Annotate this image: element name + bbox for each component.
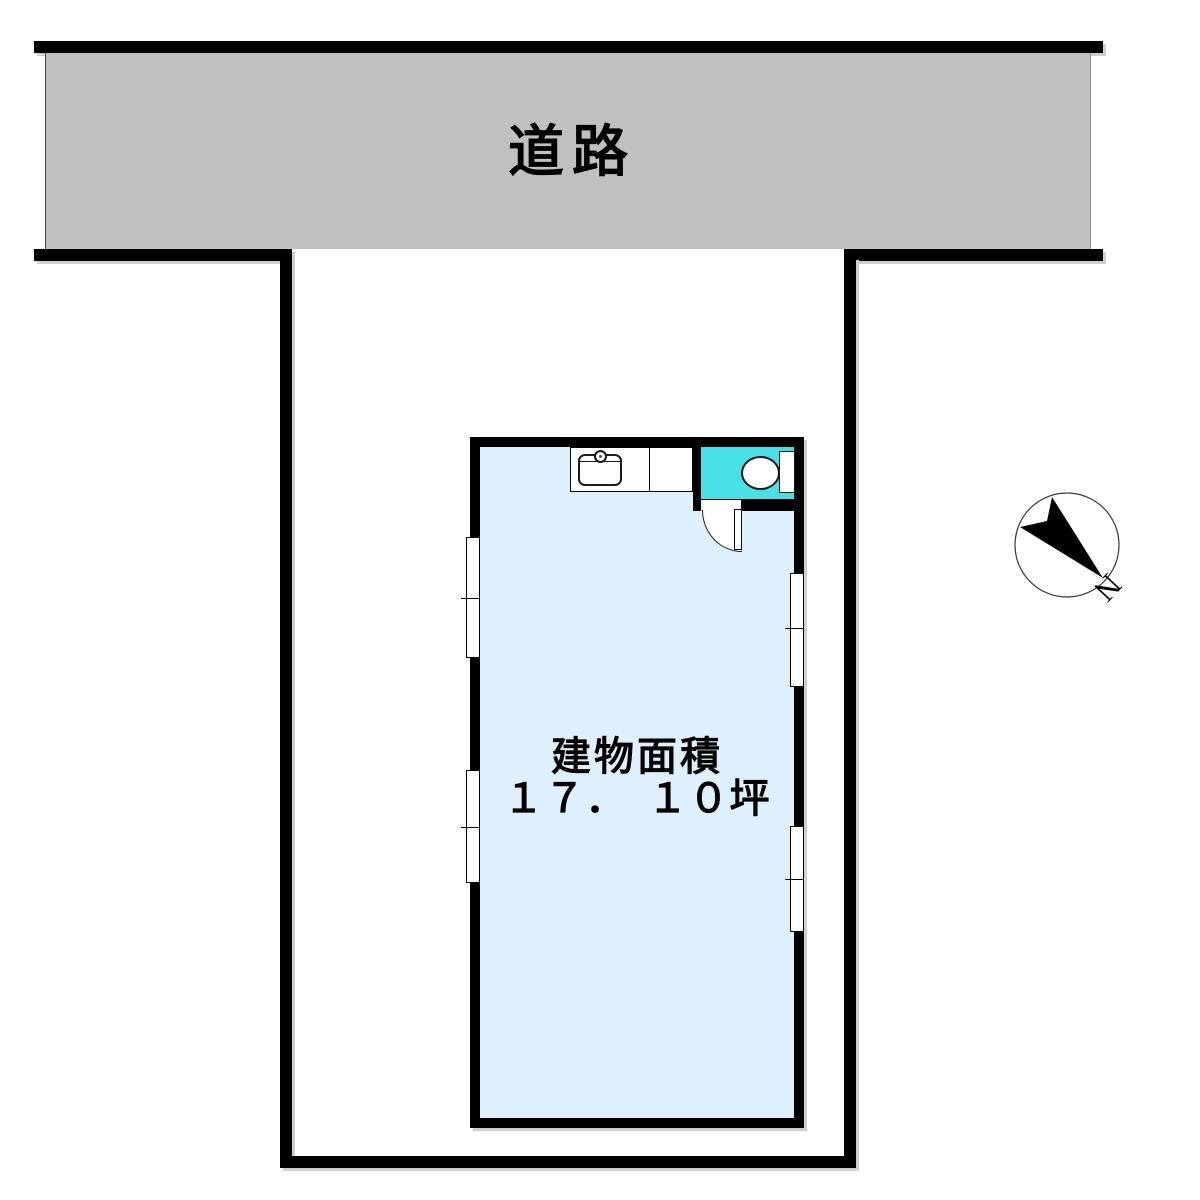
property-boundary-right [844,257,856,1168]
bathroom-wall-bottom [741,500,804,511]
window-sash-divider [791,879,803,880]
building-area-label: 建物面積 １７． １０坪 [470,736,804,820]
toilet-tank-icon [779,451,795,493]
window-right-lower [790,826,804,932]
window-sash-divider [467,598,479,599]
property-boundary-left [280,249,292,1168]
faucet-icon [594,450,607,463]
toilet-bowl-icon [741,456,780,490]
property-boundary-bottom [280,1156,856,1168]
road-surface: 道路 [45,53,1091,249]
door-leaf [734,509,742,550]
compass: N [1011,487,1131,607]
window-tick [461,598,467,599]
road-bottom-edge-right [844,249,1103,261]
window-right-upper [790,573,804,687]
faucet-dot [599,455,602,458]
window-tick [785,879,791,880]
road-label: 道路 [500,107,636,188]
kitchen-counter-divider [649,447,650,492]
window-sash-divider [791,628,803,629]
building-area-value: １７． １０坪 [470,778,804,820]
building-area-title: 建物面積 [470,736,804,778]
window-sash-divider [467,827,479,828]
window-left-upper [466,537,480,658]
road-top-edge [34,41,1103,53]
road-bottom-edge-left [34,249,292,261]
site-plan-canvas: 道路 建物面積 １７． １０坪 [0,0,1200,1200]
window-tick [785,628,791,629]
bathroom-wall-left [693,447,701,511]
window-tick [461,827,467,828]
